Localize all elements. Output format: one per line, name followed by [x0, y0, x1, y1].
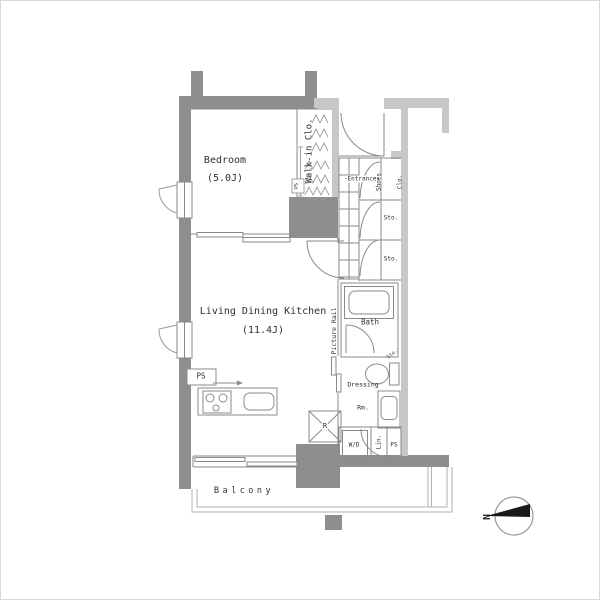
shoes-closet-line1: Shoes: [376, 173, 383, 191]
dressing-line2: Rm.: [347, 405, 378, 413]
pipe-space-kitchen-label: PS: [196, 373, 205, 382]
hanger-row-6: [305, 187, 329, 195]
picture-rail-label: Picture Rail: [331, 308, 339, 355]
wall-right: [401, 98, 408, 456]
floorplan-linework: [1, 1, 600, 600]
wall-bottom-right: [338, 455, 449, 467]
dressing-room-label: Dressing Rm.: [347, 366, 378, 427]
sliding-door-panel-2: [243, 238, 290, 243]
bedroom-size-label: (5.0J): [207, 173, 243, 185]
storage-upper-label: Sto.: [384, 214, 398, 221]
balcony-door-panel-1: [195, 458, 245, 462]
vanity-basin: [381, 397, 397, 420]
toilet-tank: [390, 363, 400, 385]
wall-walkin-entrance: [332, 101, 339, 197]
sliding-door-panel-1: [197, 233, 243, 238]
bedroom-window-swing: [159, 185, 177, 213]
kitchen-arrowhead: [237, 381, 243, 386]
ldk-window-swing: [159, 325, 177, 353]
refrigerator-label: R: [322, 422, 328, 430]
wall-door-jamb: [384, 98, 401, 109]
washer-dryer-label: W/D: [349, 441, 360, 448]
wall-left: [179, 96, 191, 489]
shoes-closet-label: Shoes Clo.: [362, 173, 419, 191]
compass-north-label: N: [479, 514, 491, 520]
balcony-door-panel-2: [247, 462, 297, 466]
dressing-line1: Dressing: [347, 382, 378, 390]
closet-door-arc-2: [360, 202, 380, 238]
pipe-space-dressing-label: PS: [390, 441, 397, 448]
bath-label: Bath: [361, 319, 379, 328]
pipe-space-walkin-label: PS: [295, 183, 301, 189]
bathtub-inner: [349, 291, 389, 314]
balcony-label: Balcony: [214, 486, 274, 496]
storage-lower-label: Sto.: [384, 255, 398, 262]
column-balcony: [296, 444, 340, 488]
compass-icon: [486, 497, 533, 535]
closet-door-arc-3: [360, 240, 380, 276]
bath-door-arc: [346, 325, 374, 353]
balcony-partition: [428, 467, 432, 507]
walkin-closet-label: Walk-in Clo.: [305, 118, 316, 183]
hall-door-arc: [307, 241, 344, 278]
entrance-door-arc: [341, 113, 384, 156]
wall-stub-top-right: [305, 71, 317, 98]
wall-stub-top-left: [191, 71, 203, 98]
column-entrance: [289, 197, 338, 238]
ldk-size-label: (11.4J): [242, 325, 284, 337]
bedroom-label: Bedroom: [204, 155, 246, 167]
kitchen-fixtures: [187, 369, 341, 442]
wall-top: [179, 96, 317, 109]
balcony-divider-block: [325, 515, 342, 530]
ldk-label: Living Dining Kitchen: [200, 306, 326, 318]
balcony-sliding-door: [193, 456, 297, 467]
dressing-slide-panel-2: [337, 374, 342, 392]
linen-label: Lin.: [375, 435, 382, 449]
wall-corridor-top: [401, 98, 449, 108]
dressing-slide-panel-1: [332, 357, 337, 375]
wall-corridor-return: [442, 108, 449, 133]
floor-plan: Bedroom (5.0J) Living Dining Kitchen (11…: [0, 0, 600, 600]
shoes-closet-line2: Clo.: [397, 173, 404, 191]
compass-needle: [486, 504, 530, 517]
